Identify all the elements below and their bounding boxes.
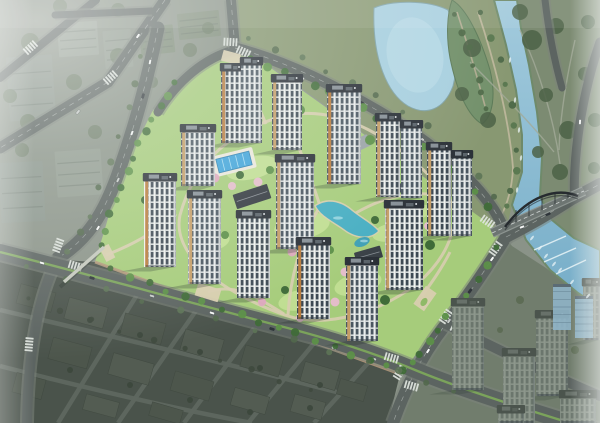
aerial-complex-scene — [0, 0, 600, 423]
haze-overlay — [0, 0, 600, 423]
haze-left-edge — [0, 0, 34, 423]
haze-top-left — [0, 0, 600, 423]
haze-right-edge — [570, 0, 600, 423]
architectural-rendering — [0, 0, 600, 423]
haze-top-edge — [0, 0, 600, 28]
